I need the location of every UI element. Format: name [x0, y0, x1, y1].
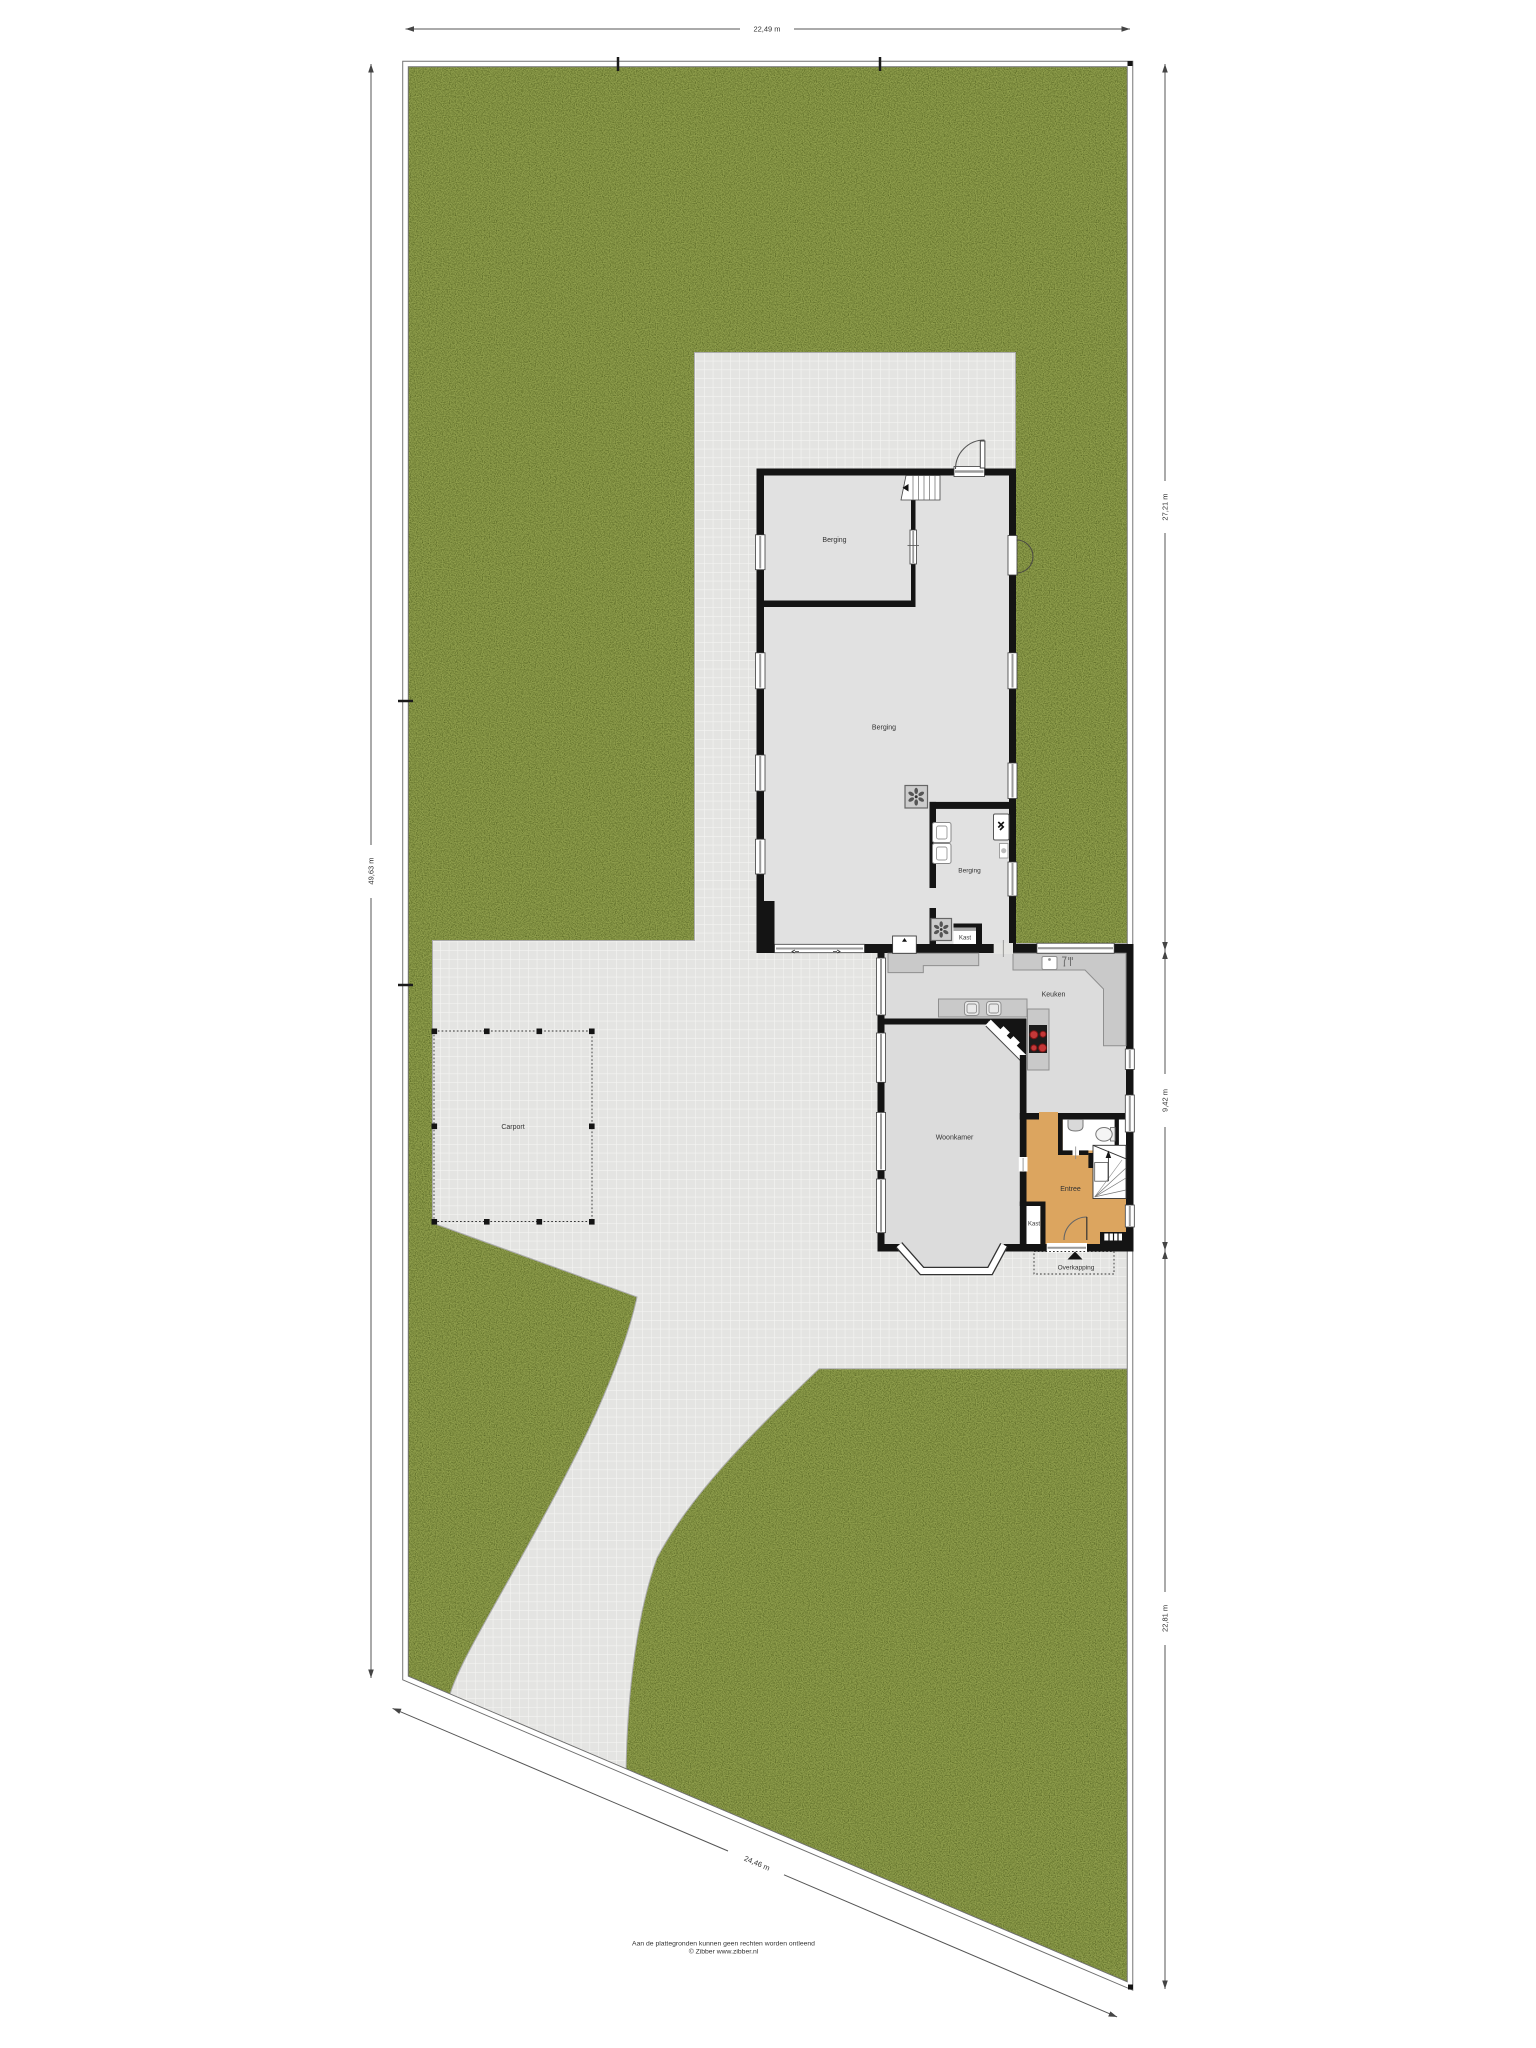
svg-text:Keuken: Keuken: [1042, 992, 1066, 999]
svg-text:Kast: Kast: [1028, 1222, 1040, 1228]
svg-text:Aan de plattegronden kunnen ge: Aan de plattegronden kunnen geen rechten…: [632, 1940, 815, 1947]
svg-text:Woonkamer: Woonkamer: [936, 1135, 974, 1142]
svg-text:Overkapping: Overkapping: [1058, 1265, 1095, 1272]
svg-text:22,49 m: 22,49 m: [753, 25, 780, 34]
svg-text:49,63 m: 49,63 m: [367, 857, 376, 884]
svg-text:27,21 m: 27,21 m: [1161, 493, 1170, 520]
svg-text:Kast: Kast: [959, 936, 971, 942]
svg-text:Entree: Entree: [1060, 1186, 1081, 1193]
svg-text:9,42 m: 9,42 m: [1161, 1089, 1170, 1112]
svg-text:Berging: Berging: [958, 868, 981, 875]
svg-text:© Zibber www.zibber.nl: © Zibber www.zibber.nl: [689, 1948, 759, 1956]
svg-text:Berging: Berging: [872, 725, 896, 732]
svg-text:Carport: Carport: [501, 1124, 524, 1131]
svg-text:22,81 m: 22,81 m: [1161, 1605, 1170, 1632]
svg-text:Berging: Berging: [822, 537, 846, 544]
